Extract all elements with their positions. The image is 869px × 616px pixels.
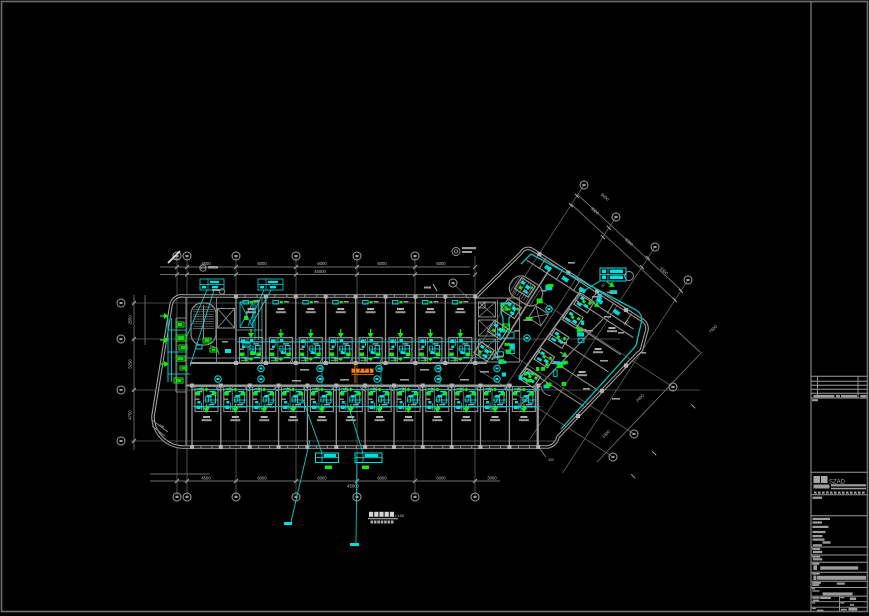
svg-text:2550: 2550 [128, 315, 133, 325]
svg-text:6000: 6000 [377, 261, 387, 266]
svg-text:1:100: 1:100 [395, 514, 405, 518]
svg-text:4500: 4500 [201, 476, 211, 481]
svg-text:45000: 45000 [347, 484, 359, 489]
svg-text:6000: 6000 [436, 476, 446, 481]
svg-text:6000: 6000 [257, 261, 267, 266]
svg-text:6000: 6000 [257, 476, 267, 481]
svg-text:6000: 6000 [317, 261, 327, 266]
svg-text:DN: DN [173, 257, 179, 261]
svg-text:6000: 6000 [436, 261, 446, 266]
svg-text:6000: 6000 [377, 476, 387, 481]
svg-text:3000: 3000 [487, 476, 497, 481]
svg-text:6000: 6000 [317, 476, 327, 481]
svg-text:4750: 4750 [128, 410, 133, 420]
svg-text:5200: 5200 [128, 359, 133, 369]
svg-text:450: 450 [548, 458, 554, 462]
svg-text:45000: 45000 [314, 269, 326, 274]
